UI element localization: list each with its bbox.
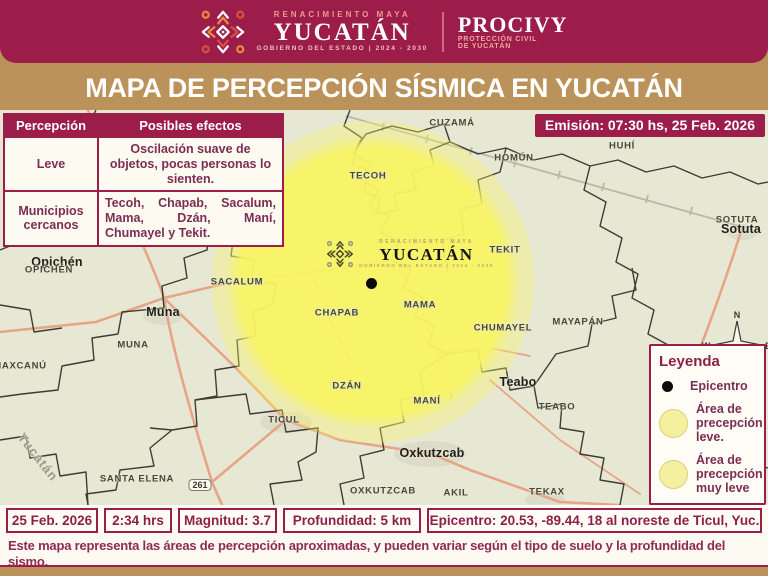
event-info-cell: Epicentro: 20.53, -89.44, 18 al noreste … <box>427 508 762 533</box>
map-label-chapab: CHAPAB <box>315 308 359 319</box>
map-label-sacalum: SACALUM <box>211 277 263 288</box>
legend-item-label: Área de precepción muy leve <box>696 453 763 495</box>
map-label-muna: Muna <box>146 305 179 319</box>
map-label-mama: MAMA <box>404 300 436 311</box>
map-label-tekax: TEKAX <box>529 487 565 498</box>
emission-badge: Emisión: 07:30 hs, 25 Feb. 2026 <box>535 114 765 137</box>
government-header: RENACIMIENTO MAYA YUCATÁN GOBIERNO DEL E… <box>0 0 768 63</box>
map-label-mayapán: MAYAPÁN <box>552 317 603 328</box>
map-label-maxcanú: MAXCANÚ <box>0 361 47 372</box>
map-label-yucatán: Yucatán <box>15 430 62 484</box>
event-info-cell: 25 Feb. 2026 <box>6 508 98 533</box>
yucatan-brand-lockup: RENACIMIENTO MAYA YUCATÁN GOBIERNO DEL E… <box>200 9 427 55</box>
map-label-tecoh: TECOH <box>350 171 387 182</box>
perception-table: Percepción Posibles efectos LeveOscilaci… <box>3 113 284 247</box>
page-title: MAPA DE PERCEPCIÓN SÍSMICA EN YUCATÁN <box>0 66 768 110</box>
watermark-gobierno-label: GOBIERNO DEL ESTADO | 2024 - 2030 <box>359 264 494 269</box>
epicenter-dot <box>366 278 377 289</box>
legend-item: Área de precepción muy leve <box>659 453 756 495</box>
de-yucatan-label: DE YUCATÁN <box>458 43 568 50</box>
header-band: RENACIMIENTO MAYA YUCATÁN GOBIERNO DEL E… <box>0 0 768 110</box>
map-label-ticul: TICUL <box>268 415 299 426</box>
legend-item: Epicentro <box>659 379 756 393</box>
proteccion-civil-label: PROTECCIÓN CIVIL <box>458 36 568 43</box>
map-label-oxkutzcab: Oxkutzcab <box>399 446 464 460</box>
map-label-tekit: TEKIT <box>490 245 521 256</box>
legend-item-label: Epicentro <box>690 379 748 393</box>
perception-area-swatch-icon <box>659 409 688 438</box>
yucatan-logo-icon <box>200 9 246 55</box>
table-header-percepcion: Percepción <box>4 114 98 137</box>
map-label-maní: MANÍ <box>413 396 440 407</box>
map-label-opichén: OPICHÉN <box>25 265 73 276</box>
table-row-value: Tecoh, Chapab, Sacalum, Mama, Dzán, Maní… <box>98 191 283 245</box>
map-label-akil: AKIL <box>444 488 469 499</box>
map-label-teabo: Teabo <box>500 375 537 389</box>
legend-items: EpicentroÁrea de precepción leve.Área de… <box>659 379 756 495</box>
legend-box: Leyenda EpicentroÁrea de precepción leve… <box>649 344 766 505</box>
watermark-yucatan-wordmark: YUCATÁN <box>379 246 473 263</box>
legend-item: Área de precepción leve. <box>659 402 756 444</box>
map-label-muna: MUNA <box>117 340 148 351</box>
gobierno-label: GOBIERNO DEL ESTADO | 2024 - 2030 <box>256 46 427 53</box>
map-label-261: 261 <box>188 479 211 491</box>
event-info-cell: 2:34 hrs <box>104 508 172 533</box>
perception-table-body: LeveOscilación suave de objetos, pocas p… <box>4 137 283 246</box>
event-info-bar: 25 Feb. 20262:34 hrsMagnitud: 3.7Profund… <box>0 505 768 535</box>
seismic-infographic: RENACIMIENTO MAYA YUCATÁN GOBIERNO DEL E… <box>0 0 768 576</box>
procivy-lockup: PROCIVY PROTECCIÓN CIVIL DE YUCATÁN <box>458 13 568 51</box>
map-label-homún: HOMÚN <box>494 153 533 164</box>
yucatan-wordmark: YUCATÁN <box>274 20 411 45</box>
map-label-cuzamá: CUZAMÁ <box>429 118 474 129</box>
map-canvas: N W E S CUZAMÁHOMÚNHUHÍTECOHSOTUTASotuta… <box>0 110 768 505</box>
epicenter-swatch-icon <box>662 381 673 392</box>
map-label-santa-elena: SANTA ELENA <box>100 474 174 485</box>
legend-title: Leyenda <box>659 353 756 370</box>
table-row: LeveOscilación suave de objetos, pocas p… <box>4 137 283 191</box>
table-row-label: Leve <box>4 137 98 191</box>
header-divider <box>442 12 444 52</box>
map-label-chumayel: CHUMAYEL <box>474 323 533 334</box>
table-row-value: Oscilación suave de objetos, pocas perso… <box>98 137 283 191</box>
procivy-wordmark: PROCIVY <box>458 13 568 36</box>
event-info-cell: Profundidad: 5 km <box>283 508 421 533</box>
map-label-dzán: DZÁN <box>332 381 361 392</box>
state-watermark: RENACIMIENTO MAYA YUCATÁN GOBIERNO DEL E… <box>326 240 494 269</box>
renacimiento-maya-label: RENACIMIENTO MAYA <box>274 11 411 19</box>
perception-area-swatch-icon <box>659 460 688 489</box>
legend-item-label: Área de precepción leve. <box>696 402 763 444</box>
map-label-huhí: HUHÍ <box>609 141 635 152</box>
table-row-label: Municipios cercanos <box>4 191 98 245</box>
watermark-logo-icon <box>326 240 354 268</box>
table-header-efectos: Posibles efectos <box>98 114 283 137</box>
event-info-cell: Magnitud: 3.7 <box>178 508 277 533</box>
map-label-oxkutzcab: OXKUTZCAB <box>350 486 416 497</box>
footer-gold-bar <box>0 567 768 576</box>
table-row: Municipios cercanosTecoh, Chapab, Sacalu… <box>4 191 283 245</box>
map-label-teabo: TEABO <box>539 402 576 413</box>
map-label-sotuta: Sotuta <box>721 222 761 236</box>
